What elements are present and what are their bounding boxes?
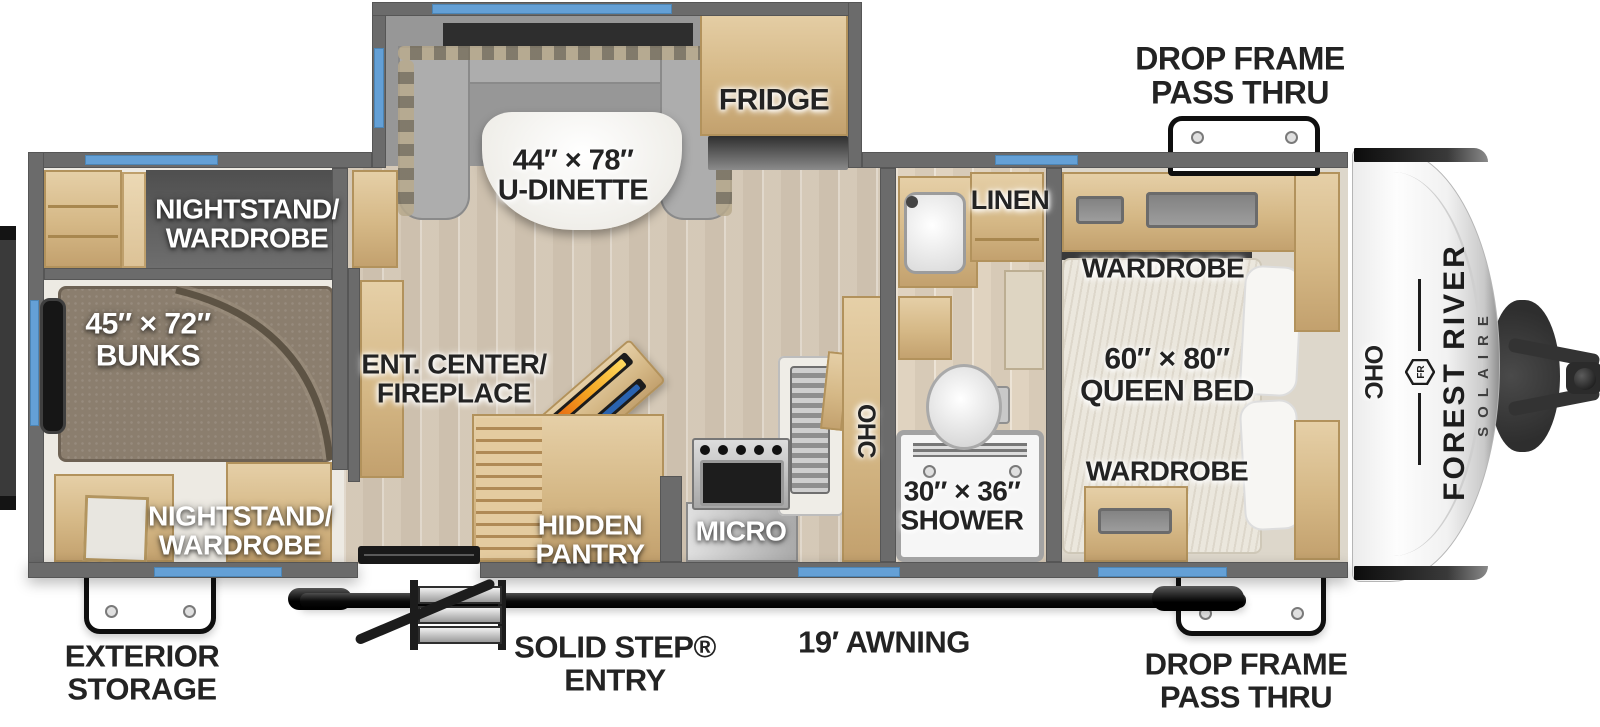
tongue-jack-cover — [1490, 300, 1560, 452]
exterior-storage-screw-left — [105, 605, 118, 618]
bedroom-overhead-handle-small — [1076, 196, 1124, 224]
label-bunks-size: 45″ × 72″ — [85, 309, 210, 341]
label-nightstand-top-line1: NIGHTSTAND/ — [155, 195, 339, 224]
label-bunks-name: BUNKS — [85, 340, 210, 372]
window-bunkroom-side — [30, 300, 39, 426]
label-pass-thru-bottom-line1: DROP FRAME — [1145, 648, 1348, 681]
window-bedroom-bottom — [1098, 567, 1227, 577]
label-dinette-name: U-DINETTE — [498, 176, 648, 206]
toilet — [926, 364, 1002, 450]
front-cap-band-bottom — [1354, 566, 1488, 580]
stove-burner-3 — [736, 445, 746, 455]
hidden-pantry-shelves — [476, 418, 542, 558]
label-queen-bed: 60″ × 80″ QUEEN BED — [1080, 344, 1254, 407]
label-nightstand-top: NIGHTSTAND/ WARDROBE — [155, 195, 339, 254]
label-exterior-storage-line2: STORAGE — [65, 673, 219, 706]
stove — [692, 438, 790, 510]
window-bunkroom-top — [85, 155, 218, 165]
label-entry-line2: ENTRY — [514, 664, 716, 697]
label-pass-thru-bottom: DROP FRAME PASS THRU — [1145, 648, 1348, 713]
label-nightstand-bottom-line1: NIGHTSTAND/ — [148, 502, 332, 531]
bunkroom-wardrobe-column — [122, 172, 146, 268]
label-nightstand-top-line2: WARDROBE — [155, 224, 339, 253]
window-slideout-left — [374, 48, 384, 128]
bunk-window-shade — [40, 298, 66, 434]
label-hidden-pantry: HIDDEN PANTRY — [536, 511, 645, 570]
slideout-wall-right — [848, 2, 862, 168]
exterior-storage-screw-right — [183, 605, 196, 618]
label-wardrobe-top: WARDROBE — [1082, 253, 1244, 282]
bunkroom-wall-divider — [44, 268, 332, 280]
label-ent-center-line2: FIREPLACE — [361, 379, 546, 408]
label-hidden-pantry-line2: PANTRY — [536, 540, 645, 569]
label-queen-bed-name: QUEEN BED — [1080, 375, 1254, 407]
bunkroom-wardrobe-top — [44, 170, 122, 268]
label-dinette-size: 44″ × 78″ — [498, 146, 648, 176]
brand-rule-right — [1418, 279, 1421, 351]
label-shower-size: 30″ × 36″ — [901, 477, 1024, 506]
pass-thru-bottom-screw-right — [1291, 607, 1304, 620]
front-cap-band-top — [1354, 148, 1488, 162]
bathroom-wall-right — [1046, 168, 1062, 562]
entry-door-line — [364, 554, 474, 556]
label-queen-bed-size: 60″ × 80″ — [1080, 344, 1254, 376]
rear-bumper — [0, 226, 16, 510]
bedroom-front-cabinet-top — [1294, 172, 1340, 332]
brand-lockup: FR FOREST RIVER SOLAIRE — [1398, 212, 1498, 532]
label-shower: 30″ × 36″ SHOWER — [901, 477, 1024, 536]
bedroom-bench-handle — [1098, 508, 1172, 534]
label-exterior-storage: EXTERIOR STORAGE — [65, 640, 219, 705]
label-pass-thru-top: DROP FRAME PASS THRU — [1135, 42, 1345, 109]
label-dinette: 44″ × 78″ U-DINETTE — [498, 146, 648, 207]
entry-step-3 — [418, 626, 502, 644]
label-hidden-pantry-line1: HIDDEN — [536, 511, 645, 540]
window-slideout-top — [432, 4, 672, 14]
window-bedroom-top — [995, 155, 1078, 165]
label-pass-thru-bottom-line2: PASS THRU — [1145, 681, 1348, 714]
label-nightstand-bottom: NIGHTSTAND/ WARDROBE — [148, 502, 332, 561]
dinette-trim-left — [398, 60, 414, 216]
rear-bumper-cap-bottom — [0, 496, 16, 510]
bedroom-front-cabinet-bottom — [1294, 420, 1340, 560]
label-entry: SOLID STEP® ENTRY — [514, 631, 716, 696]
floorplan-canvas: FR FOREST RIVER SOLAIRE DROP FRAME PASS … — [0, 0, 1600, 727]
pass-thru-top-screw-right — [1285, 131, 1298, 144]
window-kitchen-bottom — [798, 567, 900, 577]
bedroom-overhead-handle — [1146, 192, 1258, 228]
entry-door — [358, 546, 480, 564]
brand-model: SOLAIRE — [1475, 307, 1492, 437]
linen-shelf-line — [975, 238, 1039, 241]
bunkroom-nightstand-inset — [83, 495, 149, 563]
label-ohc-bedroom: OHC — [1360, 345, 1386, 399]
label-linen: LINEN — [971, 186, 1050, 214]
fridge-cabinet — [700, 8, 848, 136]
stove-burner-4 — [754, 445, 764, 455]
label-exterior-storage-line1: EXTERIOR — [65, 640, 219, 673]
label-fridge: FRIDGE — [719, 84, 829, 116]
awning-roller-right — [1152, 586, 1244, 611]
main-wall-top-right — [862, 152, 1348, 168]
label-pass-thru-top-line1: DROP FRAME — [1135, 42, 1345, 76]
stove-oven-window — [700, 460, 784, 506]
ent-center-wall — [348, 268, 360, 482]
window-bunkroom-bottom — [154, 567, 282, 577]
pass-thru-top-screw-left — [1191, 131, 1204, 144]
label-nightstand-bottom-line2: WARDROBE — [148, 531, 332, 560]
brand-rule-left — [1418, 393, 1421, 465]
label-wardrobe-bottom: WARDROBE — [1086, 456, 1248, 485]
label-ent-center: ENT. CENTER/ FIREPLACE — [361, 350, 546, 409]
bath-corner-shelf — [898, 296, 952, 360]
label-bunks: 45″ × 72″ BUNKS — [85, 309, 210, 372]
label-awning: 19′ AWNING — [798, 627, 970, 660]
label-ohc-kitchen: OHC — [853, 404, 879, 458]
bath-door-panel — [1004, 270, 1044, 370]
bath-faucet-icon — [906, 196, 918, 208]
dinette-trim-top — [398, 46, 732, 60]
living-cabinet-top-left — [352, 170, 398, 268]
stove-burner-1 — [700, 445, 710, 455]
bunkroom-wardrobe-shelf-line-2 — [48, 235, 118, 238]
hitch-ball — [1574, 368, 1596, 390]
brand-make: FOREST RIVER — [1438, 243, 1472, 501]
stove-burner-2 — [718, 445, 728, 455]
fridge-vent — [708, 136, 848, 170]
label-shower-name: SHOWER — [901, 506, 1024, 535]
brand-logo-row: FR — [1405, 279, 1435, 465]
forest-river-logo-icon: FR — [1405, 359, 1435, 385]
label-entry-line1: SOLID STEP® — [514, 631, 716, 664]
label-micro: MICRO — [696, 516, 787, 545]
bunkroom-wardrobe-shelf-line-1 — [48, 205, 118, 208]
pantry-wall — [660, 476, 682, 562]
svg-text:FR: FR — [1416, 365, 1427, 379]
stove-burner-5 — [772, 445, 782, 455]
bathroom-wall-left — [880, 168, 896, 562]
rear-bumper-cap-top — [0, 226, 16, 240]
label-pass-thru-top-line2: PASS THRU — [1135, 76, 1345, 110]
label-ent-center-line1: ENT. CENTER/ — [361, 350, 546, 379]
